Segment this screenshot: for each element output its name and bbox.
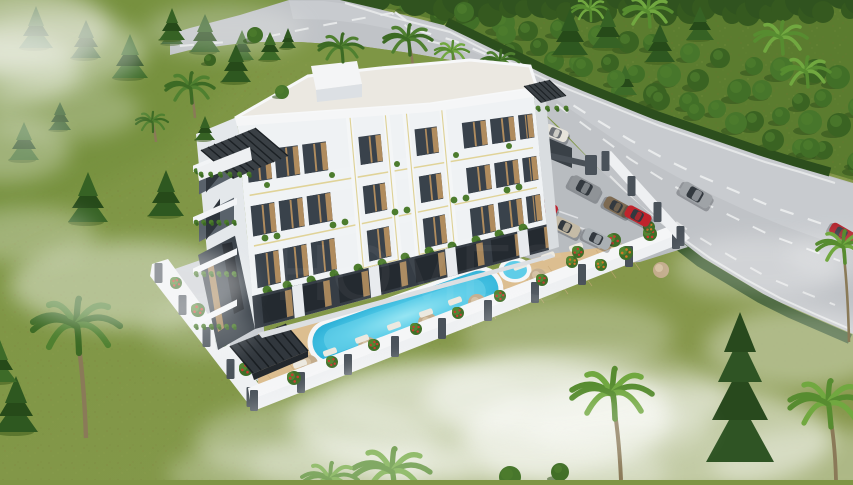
svg-text:HOMES: HOMES <box>273 228 566 317</box>
